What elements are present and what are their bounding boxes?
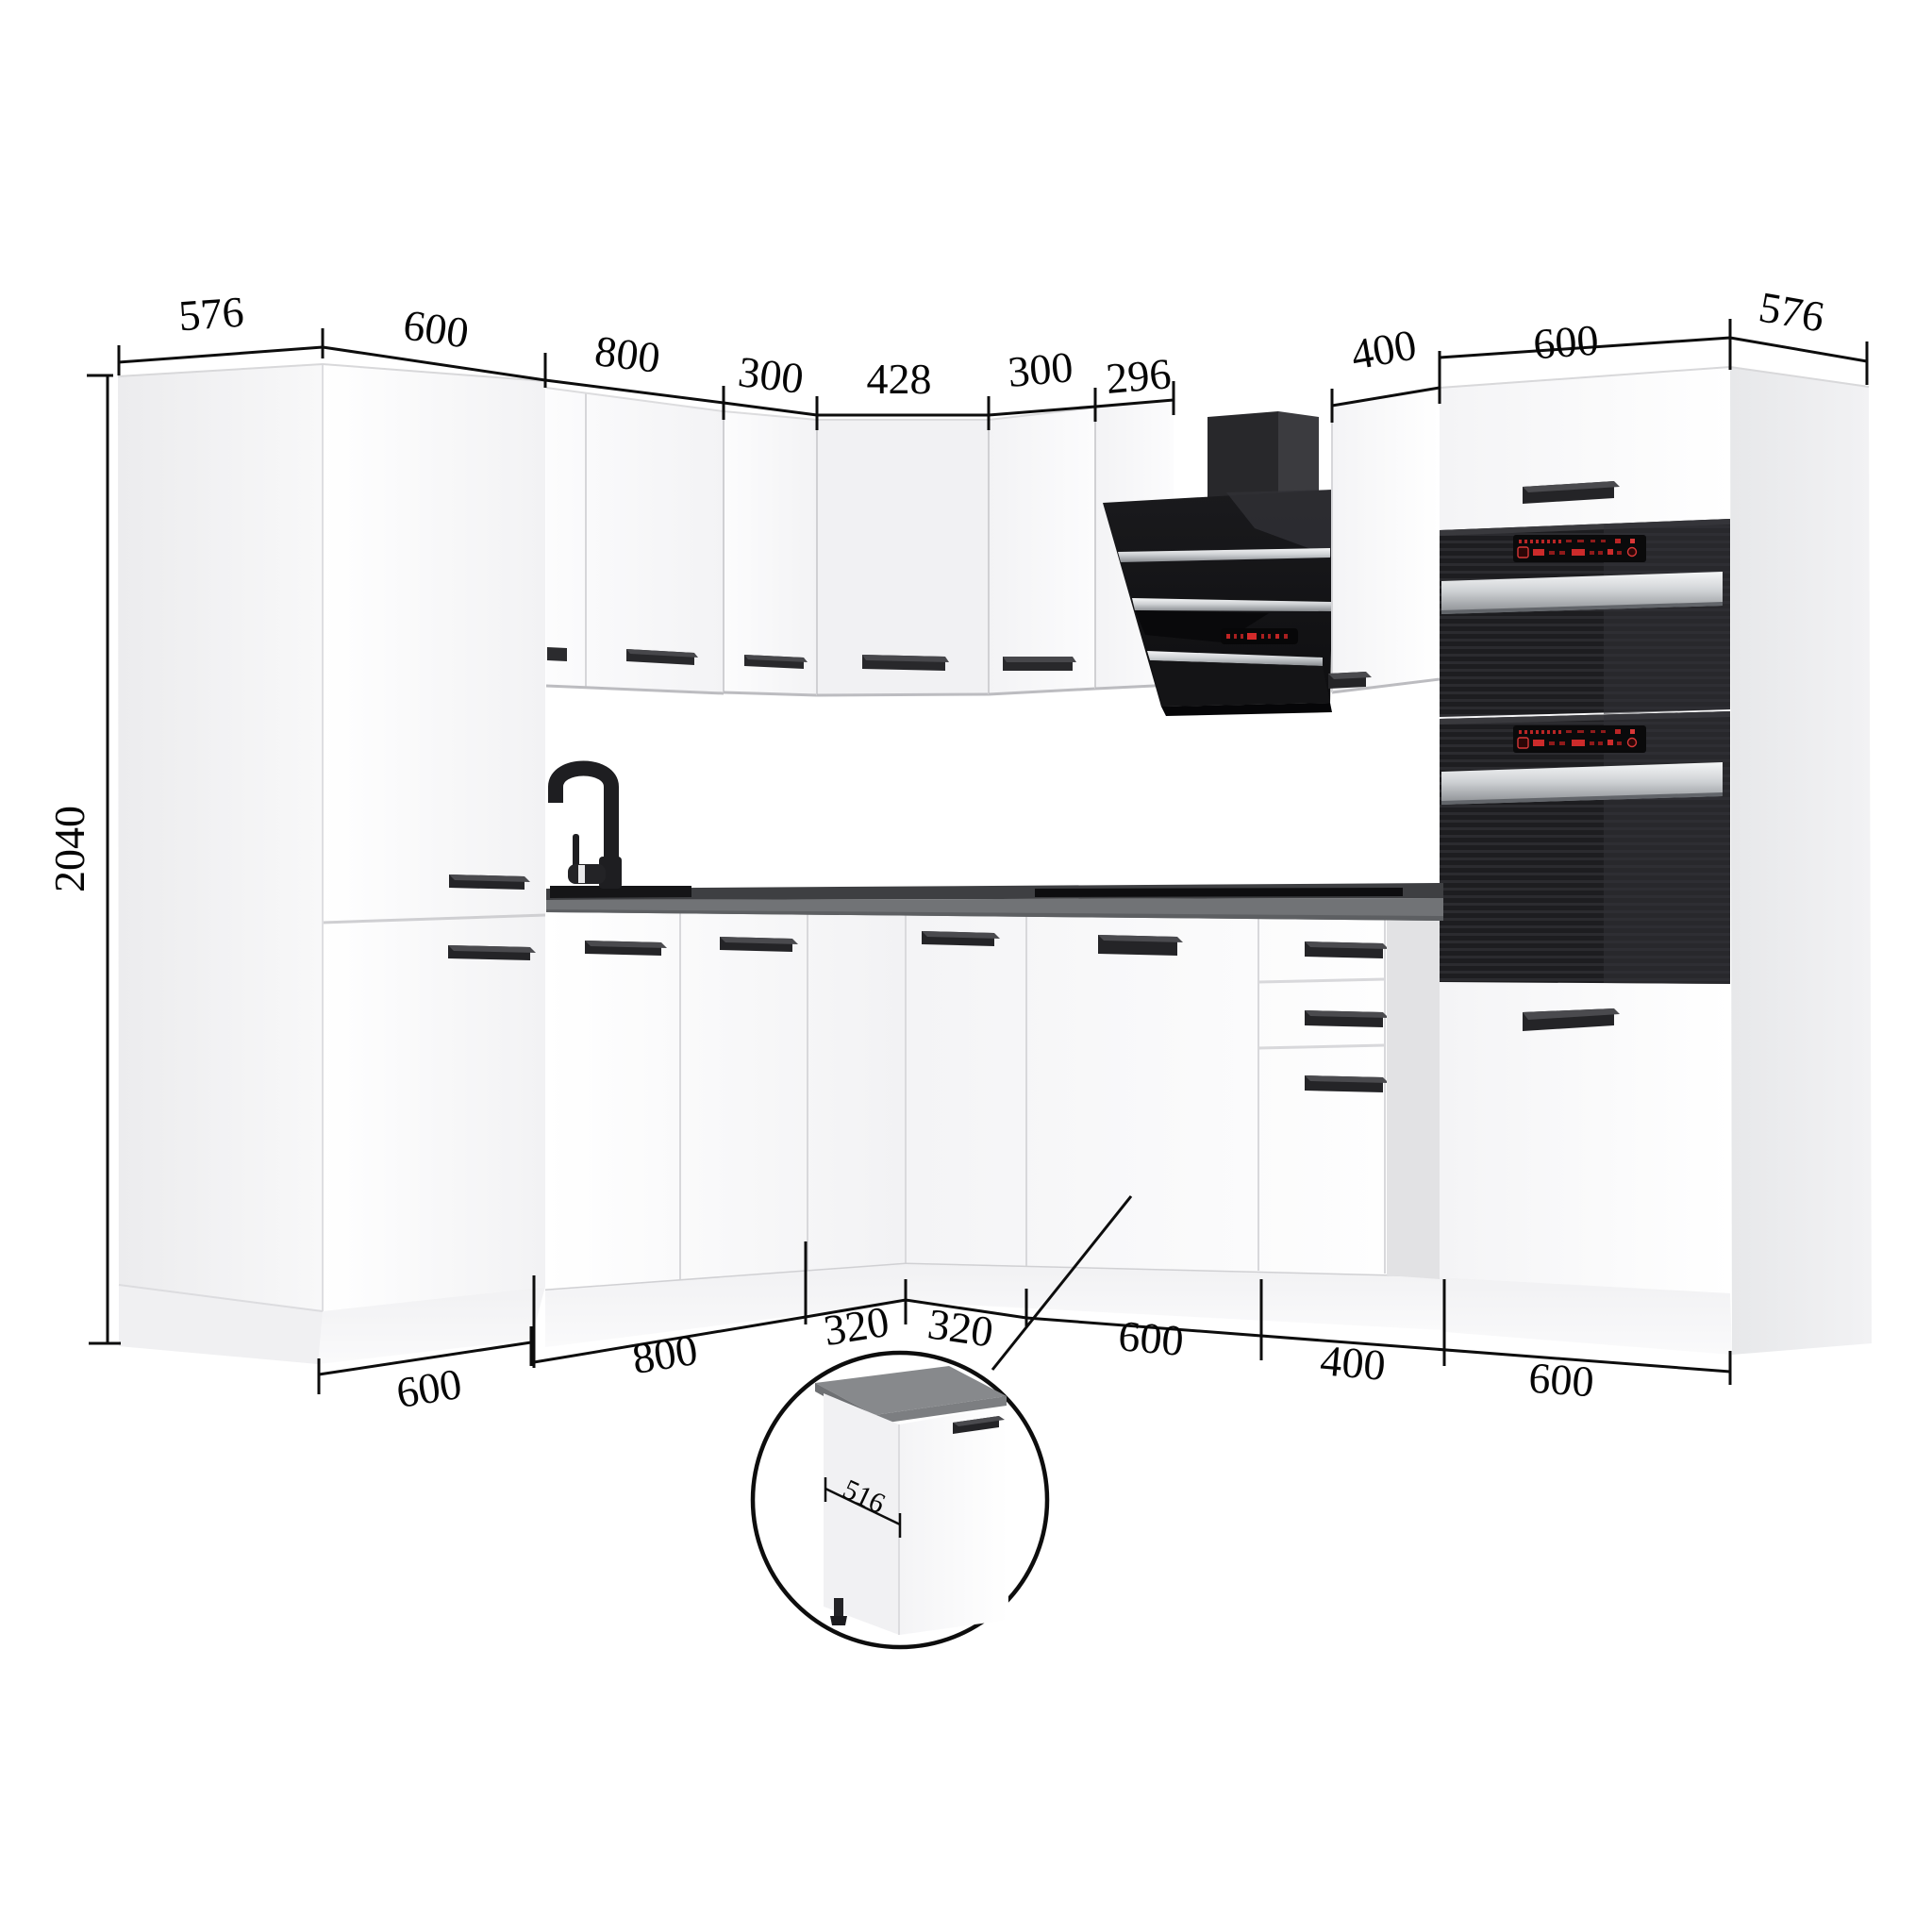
svg-text:320: 320	[821, 1297, 892, 1355]
svg-text:800: 800	[629, 1325, 701, 1383]
svg-text:400: 400	[1319, 1336, 1388, 1390]
svg-text:600: 600	[393, 1359, 465, 1417]
svg-text:300: 300	[1006, 342, 1074, 396]
svg-text:600: 600	[1527, 1354, 1595, 1407]
svg-text:296: 296	[1104, 349, 1173, 403]
svg-text:600: 600	[400, 300, 471, 357]
svg-text:600: 600	[1117, 1311, 1186, 1365]
svg-text:300: 300	[736, 347, 807, 403]
svg-text:600: 600	[1532, 316, 1600, 369]
svg-text:428: 428	[867, 355, 932, 403]
svg-text:800: 800	[592, 326, 663, 382]
svg-text:320: 320	[924, 1299, 995, 1356]
svg-text:2040: 2040	[45, 806, 93, 892]
svg-text:576: 576	[177, 288, 245, 341]
